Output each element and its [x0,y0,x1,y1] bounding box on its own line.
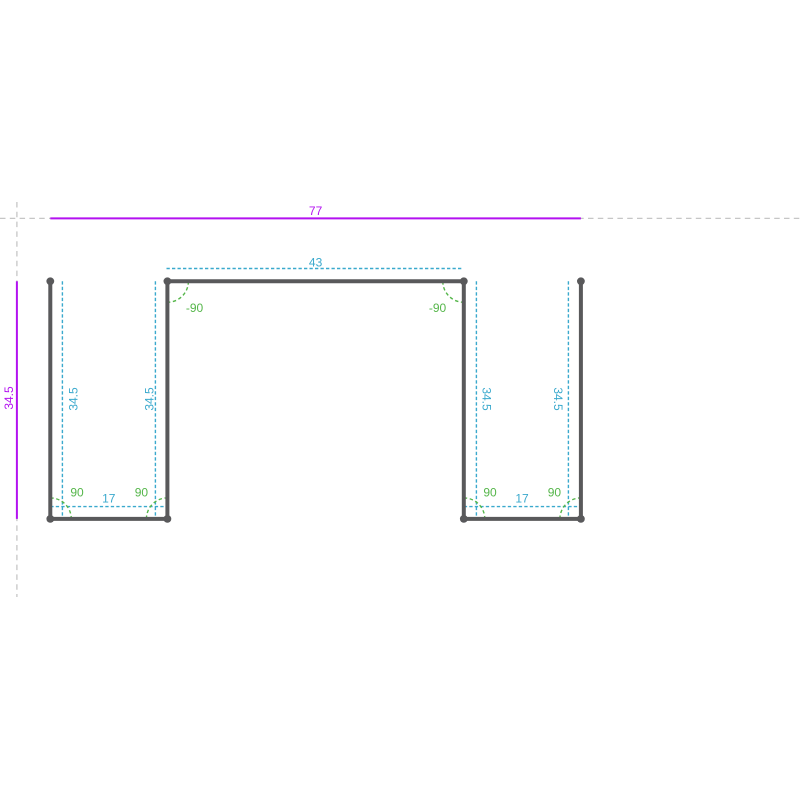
svg-text:-90: -90 [429,301,447,315]
svg-text:17: 17 [515,492,529,506]
svg-text:90: 90 [548,485,562,499]
svg-text:43: 43 [309,255,323,269]
svg-text:34.5: 34.5 [551,387,565,411]
svg-text:34.5: 34.5 [2,386,16,410]
svg-text:34.5: 34.5 [143,387,157,411]
svg-text:17: 17 [102,492,116,506]
svg-text:34.5: 34.5 [479,387,493,411]
svg-text:90: 90 [483,485,497,499]
svg-text:34.5: 34.5 [67,387,81,411]
svg-text:77: 77 [309,204,323,218]
svg-text:90: 90 [135,485,149,499]
svg-text:90: 90 [70,485,84,499]
svg-text:-90: -90 [186,301,204,315]
